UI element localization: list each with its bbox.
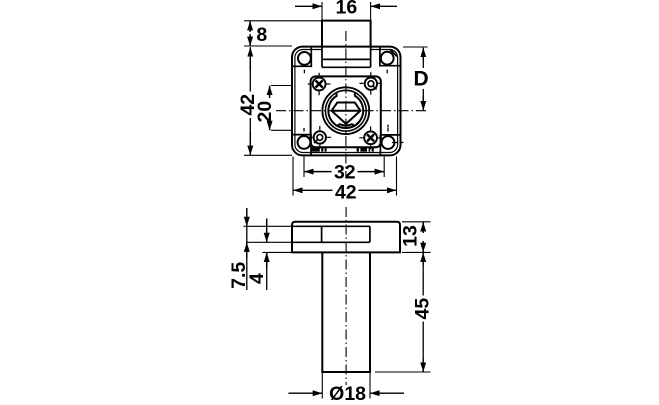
svg-text:13: 13 [399, 225, 421, 247]
svg-text:16: 16 [336, 0, 358, 18]
svg-text:D: D [414, 68, 429, 91]
svg-text:42: 42 [335, 181, 357, 203]
svg-text:32: 32 [334, 162, 356, 184]
svg-text:20: 20 [254, 101, 276, 123]
svg-text:8: 8 [256, 24, 267, 46]
svg-text:45: 45 [412, 298, 434, 320]
svg-text:4: 4 [246, 273, 268, 284]
svg-text:Ø18: Ø18 [329, 383, 366, 400]
